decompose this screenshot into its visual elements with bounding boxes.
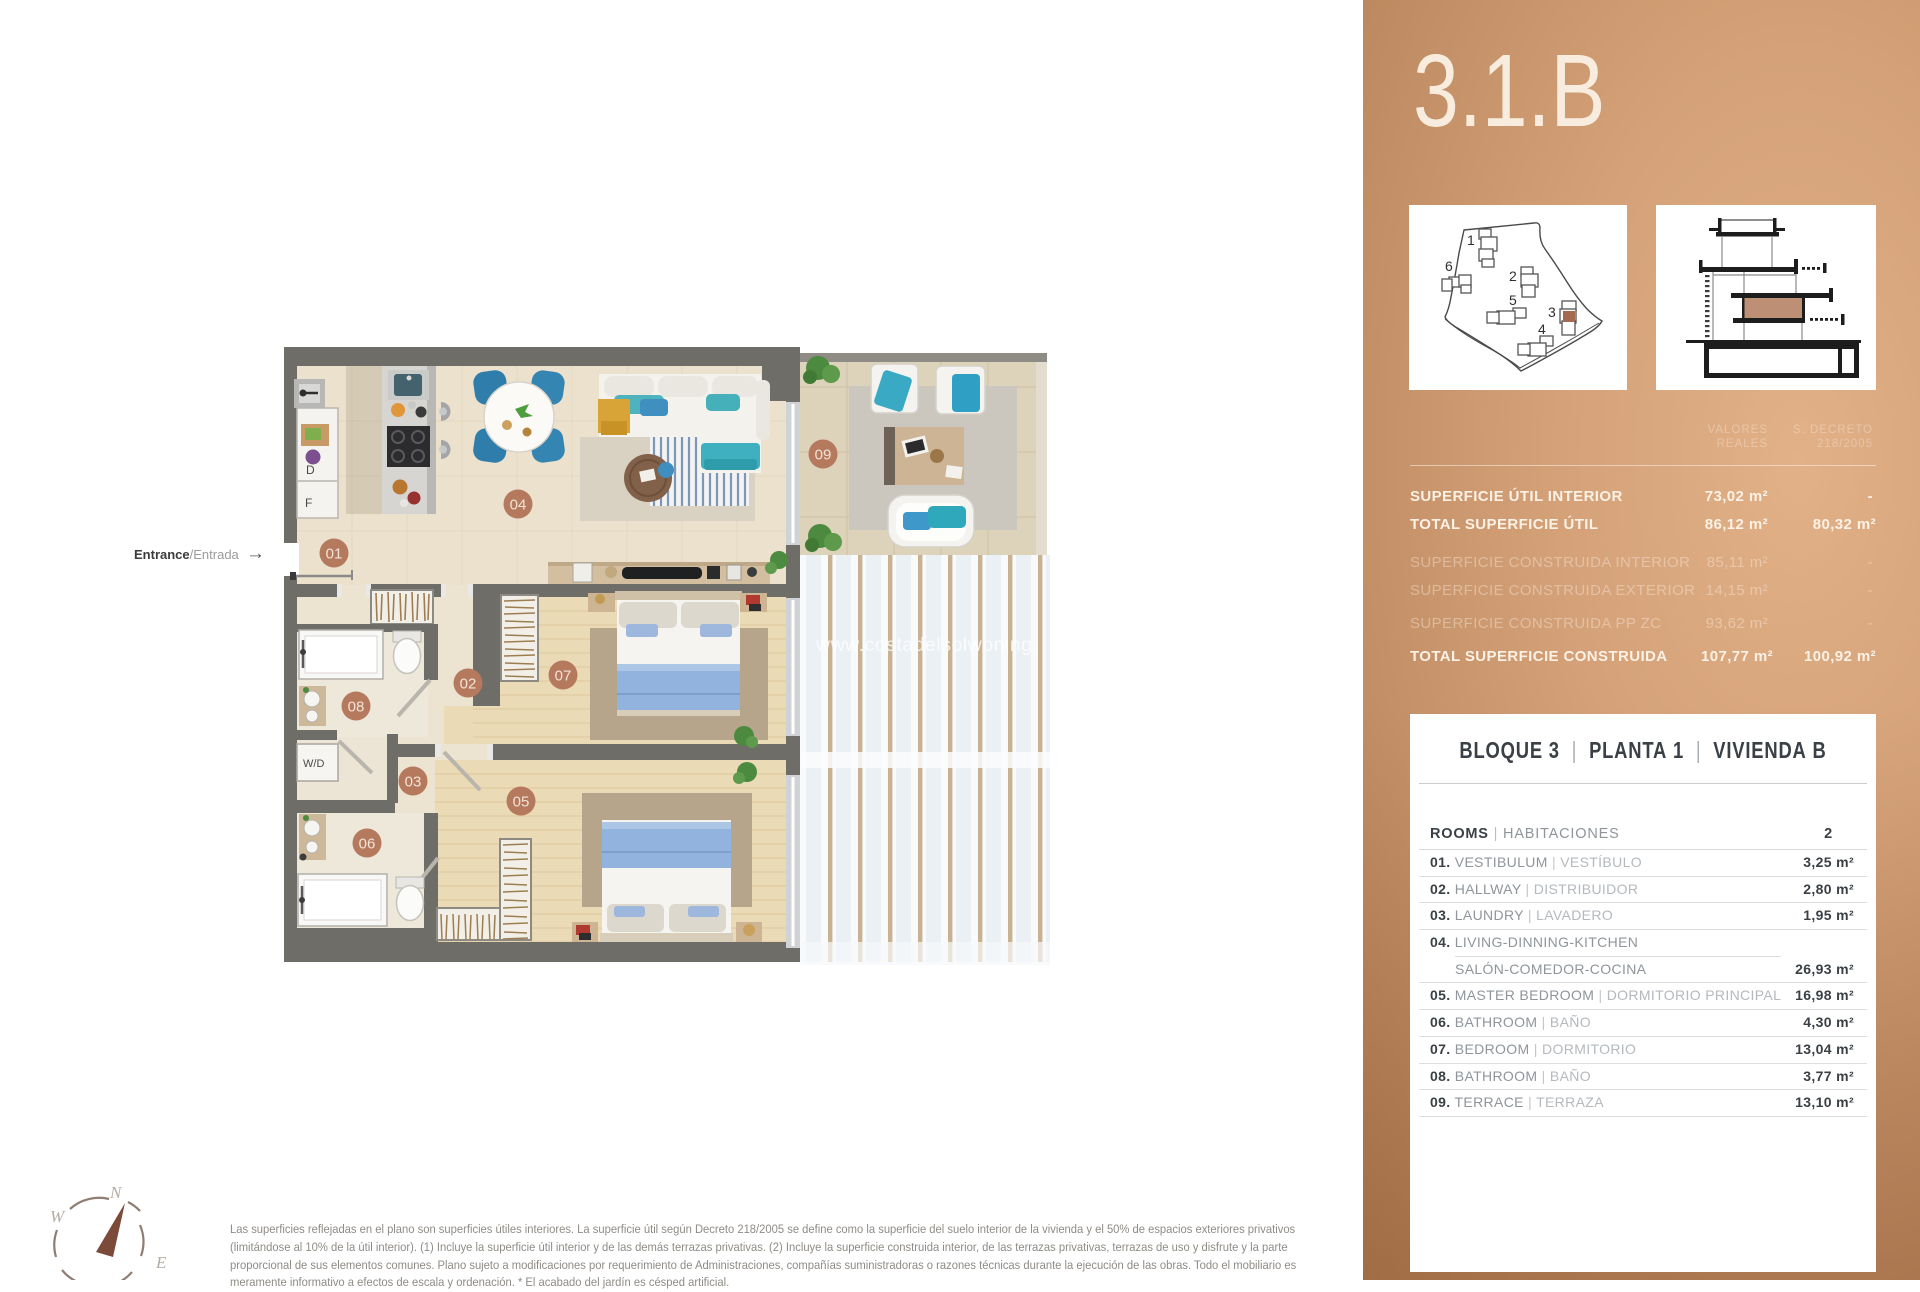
svg-text:02: 02 — [460, 676, 477, 693]
svg-text:www.costadelsolwoning: www.costadelsolwoning — [815, 634, 1032, 656]
svg-text:07: 07 — [555, 668, 572, 685]
svg-text:01: 01 — [326, 546, 343, 563]
svg-text:05: 05 — [513, 794, 530, 811]
svg-text:W: W — [50, 1207, 66, 1226]
svg-text:D: D — [306, 463, 315, 477]
svg-text:N: N — [109, 1183, 123, 1202]
svg-text:03: 03 — [405, 774, 422, 791]
svg-text:06: 06 — [359, 836, 376, 853]
svg-text:09: 09 — [815, 447, 832, 464]
svg-text:F: F — [305, 496, 312, 510]
svg-text:04: 04 — [510, 497, 527, 514]
svg-text:W/D: W/D — [303, 758, 324, 770]
svg-text:08: 08 — [348, 699, 365, 716]
svg-text:E: E — [155, 1253, 167, 1272]
